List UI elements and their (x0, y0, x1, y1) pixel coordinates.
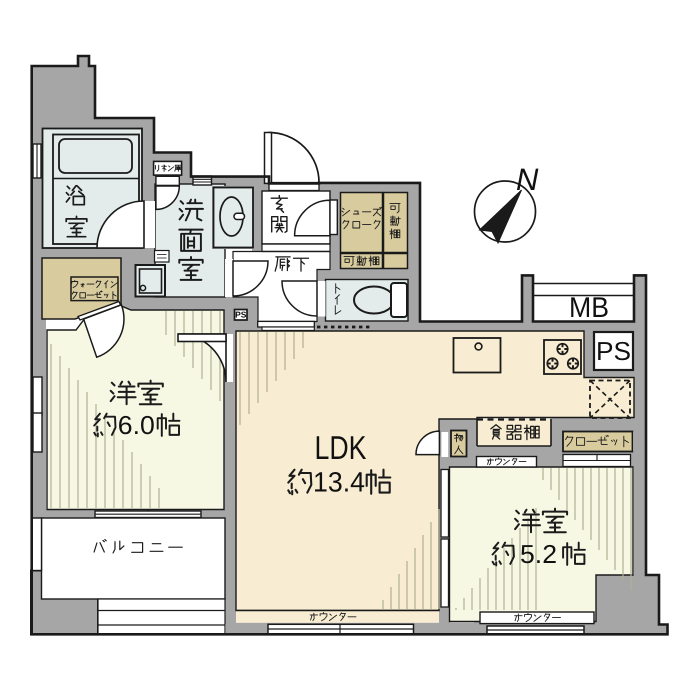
svg-text:6.0: 6.0 (118, 410, 155, 440)
svg-text:5.2: 5.2 (520, 539, 557, 569)
svg-text:N: N (516, 162, 539, 197)
svg-text:MB: MB (569, 292, 609, 324)
svg-text:13.4: 13.4 (313, 467, 365, 498)
svg-text:PS: PS (596, 336, 631, 366)
svg-text:LDK: LDK (315, 429, 367, 466)
svg-text:PS: PS (235, 310, 247, 320)
